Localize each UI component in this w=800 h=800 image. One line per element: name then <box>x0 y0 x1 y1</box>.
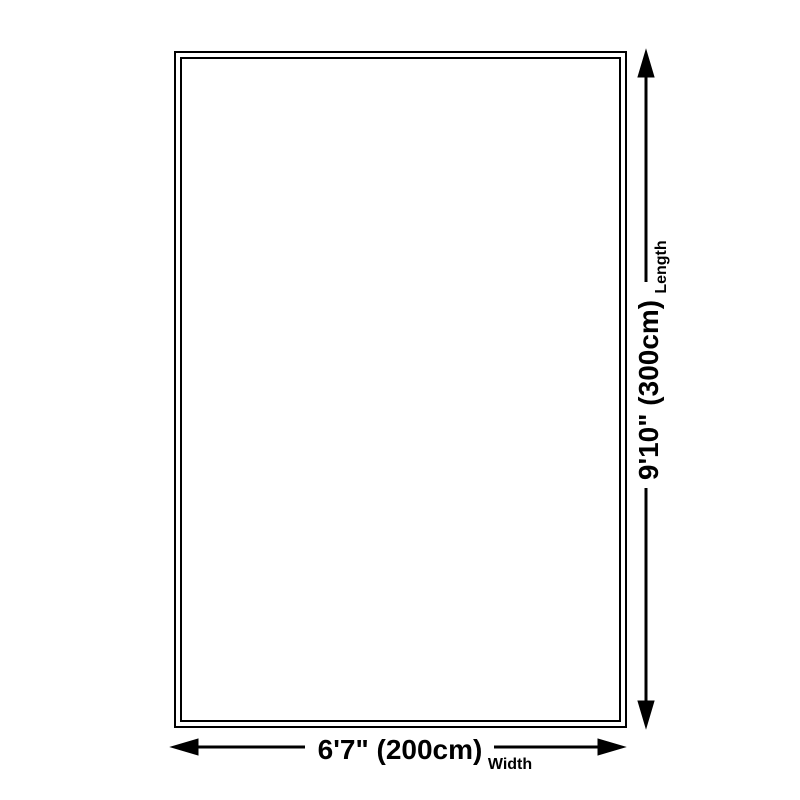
arrow-left-icon <box>171 739 198 755</box>
width-value: 6'7" (200cm) <box>318 736 483 764</box>
rug-outline <box>174 51 627 728</box>
arrow-up-icon <box>638 50 654 77</box>
length-label: Length <box>654 240 670 293</box>
rug-inner-outline <box>180 57 621 722</box>
width-label: Width <box>488 757 532 773</box>
arrow-down-icon <box>638 701 654 728</box>
length-value: 9'10" (300cm) <box>635 300 663 480</box>
arrow-right-icon <box>598 739 625 755</box>
rug-dimension-diagram: 9'10" (300cm) Length 6'7" (200cm) Width <box>0 0 800 800</box>
